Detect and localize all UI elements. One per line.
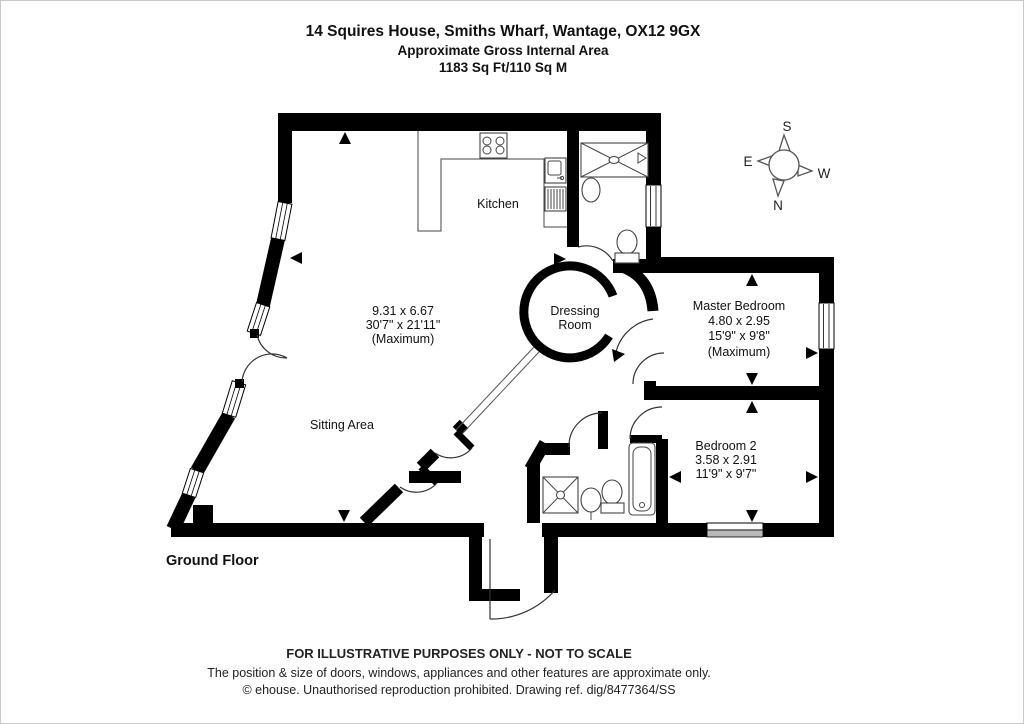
wall-bottom-mid (542, 523, 707, 537)
master-bedroom-label: Master Bedroom (693, 299, 785, 313)
sitting-dims-note: (Maximum) (372, 332, 435, 346)
french-door-arc (242, 354, 287, 382)
wall-step (193, 505, 213, 523)
dimension-arrow-left (290, 252, 302, 264)
sink-icon (545, 158, 566, 183)
wall-kitchen-showerroom (567, 131, 579, 247)
wall-right-upper (819, 273, 834, 305)
wall-master-top (656, 257, 834, 273)
dimension-arrow-down (338, 510, 350, 522)
compass-south-label: S (782, 119, 791, 134)
bathroom-door-arc (569, 413, 602, 447)
sitting-dims-metric: 9.31 x 6.67 (372, 304, 434, 318)
window-bedroom2-bottom (707, 523, 763, 537)
title-address: 14 Squires House, Smiths Wharf, Wantage,… (306, 23, 701, 40)
toilet-icon (615, 230, 639, 263)
compass-rose: S E W N (743, 119, 830, 213)
master-door-arc (633, 353, 664, 384)
showerroom-fixtures (581, 143, 648, 263)
compass-west-label: W (818, 166, 831, 181)
shower-tray-icon (581, 143, 648, 177)
wall-left-2 (263, 239, 278, 305)
dressing-room-label-line1: Dressing (550, 304, 599, 318)
toilet-icon (601, 480, 624, 513)
ground-floor-label: Ground Floor (166, 553, 259, 569)
hall-screen-line (456, 347, 534, 430)
master-door-arc (615, 319, 653, 358)
showerroom-door-arc (578, 246, 613, 261)
window-left-1 (271, 202, 292, 241)
floorplan-svg: 14 Squires House, Smiths Wharf, Wantage,… (1, 1, 1024, 724)
bedroom2-dims-metric: 3.58 x 2.91 (695, 453, 757, 467)
footer: FOR ILLUSTRATIVE PURPOSES ONLY - NOT TO … (207, 646, 711, 697)
windows (182, 185, 834, 537)
footer-approximate-note: The position & size of doors, windows, a… (207, 666, 711, 680)
wall-divider-stub (644, 381, 656, 400)
dimension-arrow-right (806, 471, 818, 483)
bathroom-door-leaf (598, 411, 608, 449)
wall-bottom-right (763, 523, 834, 537)
kitchen-label: Kitchen (477, 197, 519, 211)
wall-bedroom2-left (656, 439, 668, 523)
shower-tray-icon (543, 477, 578, 513)
compass-point-right (798, 165, 812, 176)
master-dims-imperial: 15'9" x 9'8" (708, 329, 770, 343)
wall-hall-diagonal-1 (364, 488, 399, 522)
dishwasher-icon (545, 187, 566, 211)
dimension-arrow-up (746, 401, 758, 413)
bathtub-icon (629, 443, 655, 515)
sitting-area-label: Sitting Area (310, 418, 374, 432)
master-dims-metric: 4.80 x 2.95 (708, 314, 770, 328)
window-master-right (819, 303, 834, 349)
cupboard-door-arc (435, 448, 472, 458)
dimension-arrow-left (669, 471, 681, 483)
dimension-arrow-right (806, 347, 818, 359)
compass-north-label: N (773, 198, 783, 213)
title-area-label: Approximate Gross Internal Area (397, 43, 609, 58)
dimension-arrow-down (746, 510, 758, 522)
french-door-arc (257, 335, 287, 358)
wall-top (278, 113, 661, 131)
dimension-arrow-up (746, 274, 758, 286)
cupboard-door-arc (400, 483, 437, 492)
title-block: 14 Squires House, Smiths Wharf, Wantage,… (306, 23, 701, 75)
dimension-arrow-down (746, 373, 758, 385)
compass-point-up (779, 135, 790, 151)
wall-right-lower (819, 349, 834, 537)
wall-bathroom-left (527, 463, 540, 523)
dimension-arrow-up (339, 132, 351, 144)
window-showerroom-right (646, 185, 661, 227)
basin-icon (581, 488, 601, 520)
dressing-room-label-line2: Room (558, 318, 591, 332)
wall-left-3 (197, 415, 229, 471)
bedroom2-door-arc (630, 407, 662, 439)
wall-porch-left (469, 537, 482, 601)
wall-bottom-left (171, 523, 484, 537)
wall-porch-right (544, 537, 558, 593)
sitting-dims-imperial: 30'7" x 21'11" (366, 318, 441, 332)
wall-master-bedroom2-divider (656, 386, 819, 400)
room-labels: Kitchen 9.31 x 6.67 30'7" x 21'11" (Maxi… (166, 197, 785, 569)
hall-screen-line (461, 352, 539, 435)
window-left-4 (182, 468, 203, 497)
title-area-value: 1183 Sq Ft/110 Sq M (439, 60, 567, 75)
basin-icon (582, 178, 600, 202)
cupboard-door-leaf (456, 432, 472, 448)
bedroom2-dims-imperial: 11'9" x 9'7" (696, 467, 757, 481)
wall-porch-bottom (482, 589, 520, 601)
master-dims-note: (Maximum) (708, 345, 771, 359)
hob-icon (480, 133, 507, 158)
dimension-arrow-right (612, 349, 625, 362)
floorplan-page: 14 Squires House, Smiths Wharf, Wantage,… (0, 0, 1024, 724)
compass-east-label: E (743, 154, 752, 169)
footer-disclaimer: FOR ILLUSTRATIVE PURPOSES ONLY - NOT TO … (286, 646, 632, 661)
compass-circle (769, 150, 799, 180)
compass-point-down (773, 179, 784, 196)
bedroom2-label: Bedroom 2 (695, 439, 756, 453)
kitchen-fixtures (418, 131, 567, 231)
footer-copyright: © ehouse. Unauthorised reproduction proh… (242, 683, 675, 697)
